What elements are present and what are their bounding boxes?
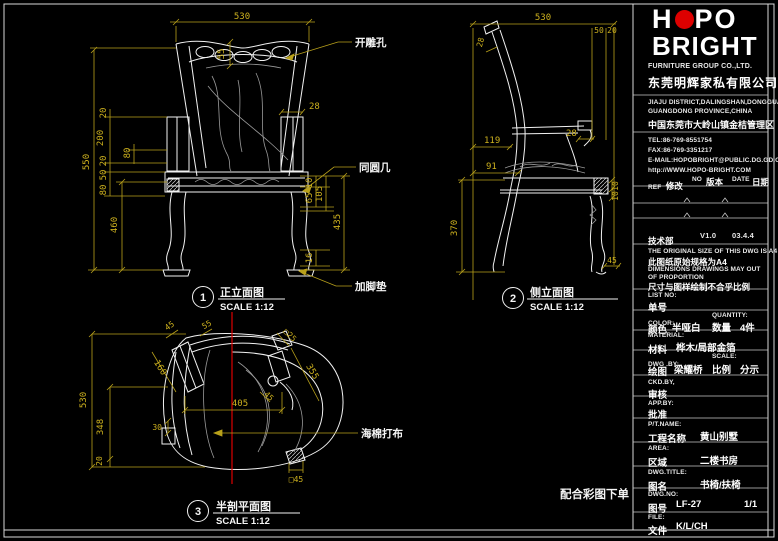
side-view-badge: 2 [510,293,516,305]
dim-front-arm28: 28 [309,102,320,112]
plan-view-badge: 3 [195,506,201,518]
ckdby-label: CKD.BY, [648,379,770,386]
dim-side-10a: 10 [611,181,620,191]
version-number: V1.0 [700,231,716,240]
rev-header: REF 修改 NO 版本 DATE 日期 [648,176,770,194]
annotation-text: 开雕孔 同圆几 加脚垫 海棉打布 1 正立面图 SCALE 1:12 2 侧立面… [195,36,630,527]
dim-front-80b: 80 [99,185,109,196]
address-en1: JIAJU DISTRICT,DALINGSHAN,DONGGUAN [648,99,770,106]
dim-front-460: 460 [110,217,120,233]
dwgby-value: 梁耀桥 [674,362,703,376]
plan-view-scale: SCALE 1:12 [216,516,270,527]
dim-front-200: 200 [96,130,106,146]
fax: FAX:86-769-3351217 [648,147,770,154]
ptname-cn: 工程名称 [648,434,686,445]
logo-text-h: H [652,4,674,34]
qty-label: QUANTITY: [712,312,748,319]
dwgno-value: LF-27 [676,499,701,510]
ptname-value: 黄山别墅 [700,429,738,443]
dwgby-scale-values: 绘图 梁耀桥 比例 分示 [648,362,770,380]
logo-o-dot [675,10,694,29]
dim-plan-348: 348 [96,419,106,435]
front-ann-hole: 开雕孔 [355,36,387,49]
dim-side-10b: 10 [611,191,620,201]
area-value: 二楼书房 [700,453,738,467]
dimension-lines [88,19,621,473]
file-value: K/L/CH [676,521,708,532]
dim-front-20b: 20 [99,156,109,167]
dim-plan-b45: □45 [289,475,304,484]
dim-plan-30: 30 [152,423,162,432]
dim-side-20: 20 [607,26,617,35]
appby-label: APP.BY: [648,400,770,407]
dwgno-label: DWG.NO: [648,491,770,498]
material-value: 桦木/局部金箔 [676,340,736,354]
footer-note: 配合彩图下单 [560,487,629,501]
dim-plan-45: 45 [163,319,176,332]
version-dept: 技术部 [648,236,674,246]
dwgtitle-label: DWG.TITLE: [648,469,770,476]
front-ann-table: 同圆几 [359,162,391,174]
logo-text-po: PO [695,4,738,34]
dim-front-r16: 16 [305,253,315,264]
plan-fabric-curves [204,350,303,458]
annotation-underlines [188,287,619,522]
dim-side-arm28: 28 [566,129,577,139]
front-view-title: 正立面图 [220,285,264,299]
cad-sheet: 530 55 550 20 200 20 80 50 80 460 28 10 … [0,0,778,541]
dim-plan-530: 530 [79,392,89,408]
dwgtitle-value: 书椅/扶椅 [700,477,741,491]
dim-front-80a: 80 [123,148,133,159]
rev-date-cn: 日期 [752,176,769,188]
dim-plan-405: 405 [232,399,248,409]
scale-label: SCALE: [712,353,737,360]
dim-front-crest: 55 [217,49,227,60]
address-en2: GUANGDONG PROVINCE,CHINA [648,108,770,115]
logo: HPO [652,6,738,33]
front-view-linework [163,41,314,276]
dim-front-20a: 20 [99,108,109,119]
side-view-scale: SCALE 1:12 [530,302,584,313]
note-en2: DIMENSIONS DRAWINGS MAY OUT [648,266,770,273]
dim-front-r65: 65 [305,193,315,204]
dim-front-height: 550 [82,154,92,170]
dim-side-50: 50 [594,26,604,35]
side-view-title: 侧立面图 [530,285,574,299]
web: http://WWW.HOPO-BRIGHT.COM [648,167,770,174]
dim-plan-20: 20 [95,456,104,466]
front-ann-pad: 加脚垫 [354,280,387,293]
dim-front-r105: 105 [315,186,325,202]
material-label: MATERIAL: [648,332,770,339]
dwgno-sheet: 1/1 [744,499,757,510]
version-row: 技术部 V1.0 03.4.4 [648,231,770,249]
area-label: AREA: [648,445,770,452]
rev-no-label: NO [692,176,702,183]
tel: TEL:86-769-8551754 [648,137,770,144]
dim-side-depth: 530 [535,13,551,23]
rev-ref-cn: 修改 [666,181,683,191]
front-cushion-curves [195,64,288,185]
dim-side-370: 370 [450,220,460,236]
scale-cn: 比例 [712,362,731,376]
dim-front-width: 530 [234,12,250,22]
rev-date-label: DATE [732,176,750,183]
address-cn: 中国东莞市大岭山镇金桔管理区 [648,118,770,131]
note-en1: THE ORIGINAL SIZE OF THIS DWG IS A4 [648,248,770,255]
version-date: 03.4.4 [732,231,754,240]
plan-view-title: 半剖平面图 [216,499,271,513]
dim-side-back28: 28 [475,36,486,48]
area-cn: 区域 [648,458,667,469]
scale-value: 分示 [740,362,759,376]
company-cn: 东莞明辉家私有限公司 [648,74,770,91]
note-en3: OF PROPORTION [648,274,770,281]
dim-front-r10: 10 [305,178,315,189]
title-block: HPO BRIGHT FURNITURE GROUP CO.,LTD. 东莞明辉… [634,0,774,541]
front-view-scale: SCALE 1:12 [220,302,274,313]
email: E-MAIL:HOPOBRIGHT@PUBLIC.DG.GD.CN [648,157,770,164]
dim-side-45: 45 [607,256,617,265]
dwgby-cn: 绘图 [648,367,667,378]
listno-label: LIST NO: [648,292,770,299]
ptname-label: P/T.NAME: [648,421,770,428]
side-view-linework [484,21,608,274]
dimension-labels: 530 55 550 20 200 20 80 50 80 460 28 10 … [79,12,620,484]
ckdby-cn: 审核 [648,387,770,401]
company-en: FURNITURE GROUP CO.,LTD. [648,63,770,70]
file-label: FILE: [648,514,770,521]
rev-ref-label: REF [648,184,661,191]
file-values: 文件 K/L/CH [648,521,770,539]
file-cn: 文件 [648,526,667,537]
dim-front-r435: 435 [333,214,343,230]
dim-side-91: 91 [486,162,497,172]
rev-no-cn: 版本 [706,176,723,188]
dim-side-119: 119 [484,136,500,146]
front-view-badge: 1 [200,292,206,304]
dim-front-50: 50 [99,170,109,181]
plan-view-linework [162,331,343,469]
logo-line2: BRIGHT [652,33,758,59]
plan-ann-foam: 海棉打布 [361,427,403,440]
appby-cn: 批准 [648,407,770,421]
